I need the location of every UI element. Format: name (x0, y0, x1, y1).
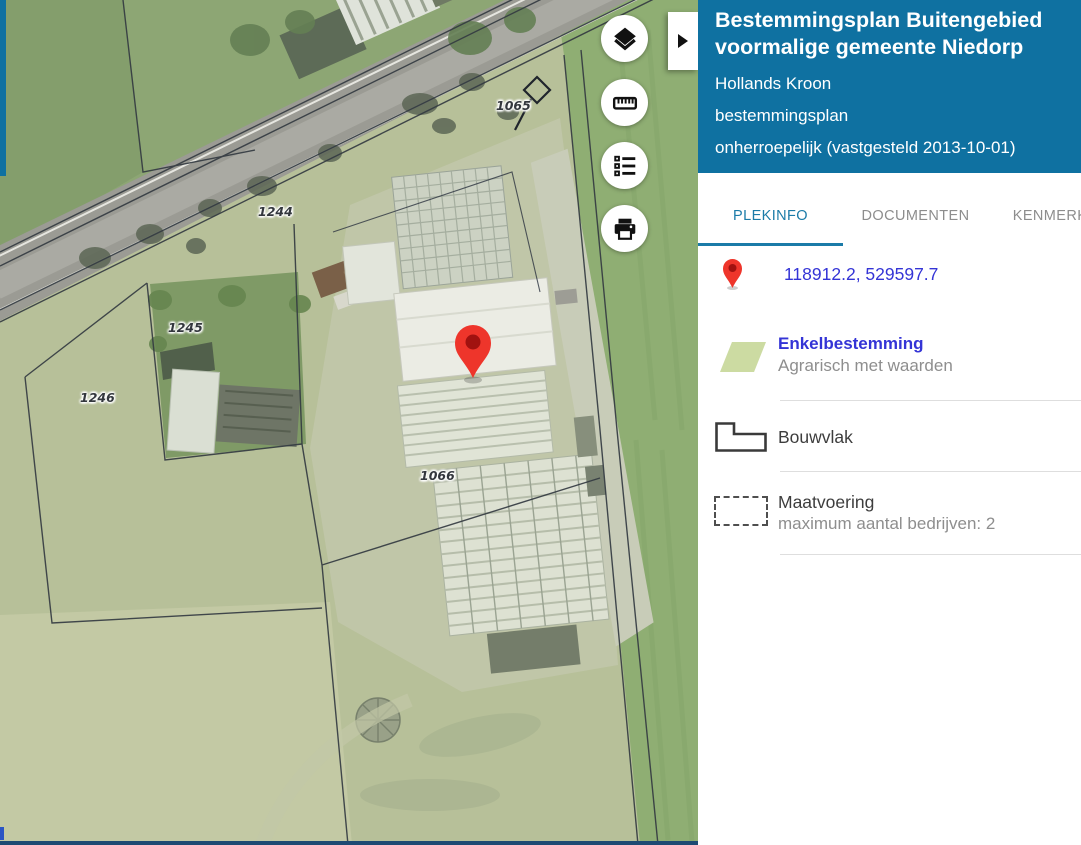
panel-collapse-toggle[interactable] (668, 12, 698, 70)
tab-kenmerken[interactable]: KENMERKEN (988, 207, 1081, 246)
left-edge-strip (0, 0, 6, 176)
plan-title: Bestemmingsplan Buitengebied voormalige … (715, 7, 1064, 61)
printer-icon (612, 216, 638, 242)
print-button[interactable] (601, 205, 648, 252)
legend-row-maatvoering: Maatvoering maximum aantal bedrijven: 2 (698, 472, 1081, 554)
bouwvlak-icon (704, 421, 778, 453)
layers-button[interactable] (601, 15, 648, 62)
pin-icon (710, 258, 784, 290)
plan-viewer: 1065 1244 1245 1246 1066 Bestemmingsplan… (0, 0, 1081, 845)
enkelbestemming-link[interactable]: Enkelbestemming (778, 334, 1081, 354)
legend-list-icon (612, 153, 638, 179)
tab-documenten[interactable]: DOCUMENTEN (843, 207, 988, 246)
map-area[interactable]: 1065 1244 1245 1246 1066 (0, 0, 698, 845)
bottom-bar (0, 841, 698, 845)
tab-plekinfo[interactable]: PLEKINFO (698, 207, 843, 246)
maatvoering-label: Maatvoering (778, 492, 1081, 512)
ruler-icon (612, 90, 638, 116)
tab-bar: PLEKINFO DOCUMENTEN KENMERKEN (698, 173, 1081, 246)
legend-row-enkelbestemming: Enkelbestemming Agrarisch met waarden (698, 334, 1081, 378)
layers-icon (612, 26, 638, 52)
legend-row-bouwvlak: Bouwvlak (698, 401, 1081, 471)
plan-header: Bestemmingsplan Buitengebied voormalige … (698, 0, 1081, 173)
plan-status: onherroepelijk (vastgesteld 2013-10-01) (715, 132, 1064, 164)
divider (780, 554, 1081, 555)
enkelbestemming-swatch (704, 334, 778, 372)
bouwvlak-label: Bouwvlak (778, 427, 1081, 447)
chevron-right-icon (678, 34, 688, 48)
info-panel: Bestemmingsplan Buitengebied voormalige … (698, 0, 1081, 845)
plekinfo-content: 118912.2, 529597.7 Enkelbestemming Agrar… (698, 258, 1081, 555)
map-canvas[interactable] (0, 0, 698, 845)
left-edge-marker (0, 827, 4, 840)
maatvoering-icon (704, 492, 778, 526)
plan-type: bestemmingsplan (715, 100, 1064, 132)
measure-button[interactable] (601, 79, 648, 126)
coordinates-row: 118912.2, 529597.7 (698, 258, 1081, 290)
coordinates-link[interactable]: 118912.2, 529597.7 (784, 264, 938, 285)
enkelbestemming-value: Agrarisch met waarden (778, 354, 1081, 378)
maatvoering-value: maximum aantal bedrijven: 2 (778, 512, 1081, 536)
plan-municipality: Hollands Kroon (715, 68, 1064, 100)
legend-button[interactable] (601, 142, 648, 189)
